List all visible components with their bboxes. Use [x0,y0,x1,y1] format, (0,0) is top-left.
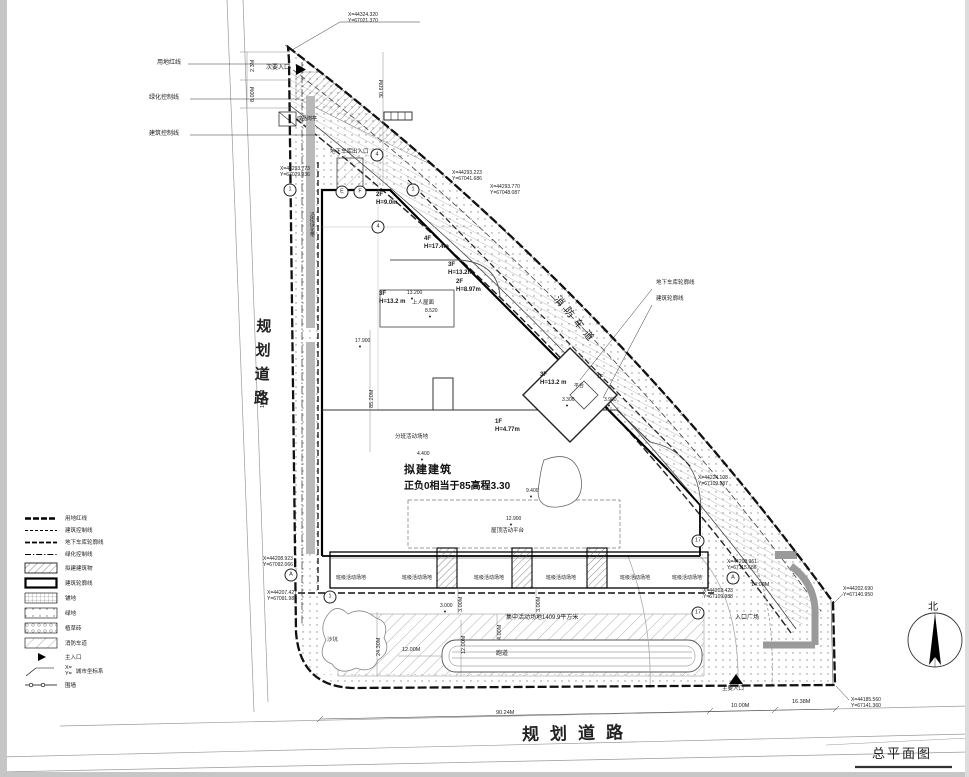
main-entrance-swatch [24,651,58,663]
coordinate-label: X=44207.427Y=67091.986 [267,590,297,602]
grid-bubble: 1 [324,591,337,604]
grid-bubble: A [285,569,298,582]
grass-brick-swatch [24,622,58,634]
dimension-label: 85.20M [369,390,375,408]
legend-label: 拟建建筑物 [65,564,93,572]
dimension-label: 3.00M [536,597,542,612]
legend-item-city-coords: X=Y= 城市坐标系 [24,664,164,678]
level-marker: 3.300▼ [562,398,575,407]
coordinate-label: X=44293.223Y=67041.686 [452,170,482,182]
floor-label: 3FH=13.2 m [540,372,567,387]
green-control-swatch [24,549,58,560]
coordinate-label: X=44293.770Y=67048.087 [490,184,520,196]
dimension-label: 8.00M [250,87,256,102]
grid-bubble: E [336,186,349,199]
garage-outline-swatch [24,537,58,548]
annotation-label: 建筑轮廓线 [656,296,684,302]
dimension-label: 90.24M [496,710,514,716]
coordinate-label: X=44208.961Y=67115.686 [727,559,757,571]
annotation-label: 用地红线 [157,60,181,67]
grid-bubble: 17 [692,535,705,548]
level-marker: 17.900▼ [355,339,370,348]
legend-item-building-control: 建筑控制线 [24,524,164,536]
legend-item-fire-lane: 消防车道 [24,635,164,650]
wall-swatch [24,679,58,691]
annotation-label: 地下车库出入口 [330,149,369,155]
legend-label: 绿地 [65,609,76,617]
dimension-label: 14.06M [751,582,769,588]
level-marker: 13.200▼ [407,291,422,300]
legend-label: 用地红线 [65,514,87,522]
north-label: 北 [928,598,938,613]
legend-item-wall: 围墙 [24,678,164,692]
floor-label: 1FH=4.77m [495,419,520,434]
city-coords-swatch [24,665,58,678]
legend-item-redline: 用地红线 [24,512,164,524]
level-marker: 12.900▼ [506,517,521,526]
coordinate-label: X=44208.923Y=67092.066 [263,556,293,568]
legend-label: 围墙 [65,681,76,689]
annotation-label: 消防车道 [551,294,599,348]
annotation-label: 主要入口 [722,686,744,692]
annotation-label: 次要入口 [266,65,290,72]
paving-swatch [24,592,58,604]
page-edge-bottom [0,772,969,777]
annotation-label: 沿街绿化带 [308,212,314,237]
annotation-label: 班级活动场地 [620,576,650,582]
legend-label: 铺地 [65,594,76,602]
dimension-label: 13.12M [260,390,266,408]
fire-lane-swatch [24,637,58,649]
dimension-label: 2.3M [250,60,256,72]
dimension-label: 3.00M [458,597,464,612]
grid-bubble: F [354,186,367,199]
level-marker: 9.400▼ [526,489,539,498]
legend-item-garage-outline: 地下车库轮廓线 [24,536,164,548]
legend-label: 主入口 [65,653,82,661]
dimension-label: 12.00M [461,636,467,654]
redline-swatch [24,513,58,524]
legend-label: 建筑控制线 [65,526,93,534]
grid-bubble: A [727,572,740,585]
legend-label: 植草砖 [65,624,82,632]
coordinate-label: X=44202.690Y=67140.950 [843,586,873,598]
coordinate-label: X=44293.773Y=67029.936 [280,166,310,178]
level-marker: 8.520▼ [425,309,438,318]
coordinate-label: X=44324.320Y=67021.370 [348,12,378,24]
grid-bubble: 1 [284,184,297,197]
site-plan-sheet: 规划道路 规划道路 总平面图 北 拟建建筑 正负0相当于85高程3.30 用地红… [0,0,969,777]
annotation-label: 地下车库轮廓线 [656,280,695,286]
page-edge-right [965,0,969,777]
annotation-label: 屋顶活动平台 [491,528,524,534]
annotation-label: 1F [597,374,603,380]
annotation-label: 集中活动场地1409.9平方米 [506,615,578,622]
annotation-label: 班级活动场地 [474,576,504,582]
legend-label: 地下车库轮廓线 [65,538,104,546]
dimension-label: 24.30M [376,638,382,656]
legend-item-green-control: 绿化控制线 [24,548,164,560]
annotation-label: 沙坑 [327,637,338,643]
annotation-label: 建筑控制线 [149,131,179,138]
dimension-label: 12.00M [402,647,420,653]
annotation-label: 跑道 [496,651,508,658]
level-marker: 3.900▼ [604,398,617,407]
annotation-label: 班级活动场地 [546,576,576,582]
legend-item-paving: 铺地 [24,590,164,605]
coordinate-label: X=44224.108Y=67109.987 [698,475,728,487]
level-marker: 3.000▼ [440,604,453,613]
grid-bubble: 17 [692,607,705,620]
floor-label: 3FH=13.2 m [379,291,406,306]
coordinate-label: X=44185.560Y=67141.360 [851,697,881,709]
dimension-label: 30.60M [379,80,385,98]
annotation-label: 成品岗亭 [297,117,317,123]
dimension-label: 4.00M [497,625,503,640]
grid-bubble: 1 [407,184,420,197]
dimension-label: 10.00M [731,703,749,709]
annotation-label: 入口广场 [735,615,759,622]
floor-label: 4FH=17.4m [424,236,449,251]
building-outline-swatch [24,577,58,589]
legend-item-main-entrance: 主入口 [24,650,164,664]
legend-item-greenery: 绿地 [24,605,164,620]
greenery-swatch [24,607,58,619]
page-edge-left [0,0,7,777]
legend-label: 建筑轮廓线 [65,579,93,587]
sheet-title: 总平面图 [872,743,932,762]
legend-coord-symbol: X=Y= [65,665,72,677]
floor-label: 2FH=9.0m [376,192,398,207]
legend-label: 消防车道 [65,639,87,647]
annotation-label: 绿化控制线 [149,95,179,102]
legend-item-building-outline: 建筑轮廓线 [24,575,164,590]
floor-label: 3FH=13.2m [448,262,473,277]
grid-bubble: 4 [372,221,385,234]
annotation-label: 平台 [574,384,584,390]
annotation-label: 分班活动场地 [395,434,428,440]
legend-item-proposed-building: 拟建建筑物 [24,560,164,575]
annotation-label: 班级活动场地 [672,576,702,582]
annotation-label: 班级活动场地 [336,576,366,582]
floor-label: 2FH=8.97m [456,279,481,294]
annotation-label: 上人屋面 [412,300,434,306]
legend-label: 城市坐标系 [76,667,104,675]
building-control-swatch [24,525,58,536]
grid-bubble: 4 [371,149,384,162]
legend-item-grass-brick: 植草砖 [24,620,164,635]
dimension-label: 16.38M [792,699,810,705]
level-marker: 4.400▼ [417,452,430,461]
proposed-building-swatch [24,562,58,574]
annotation-label: 班级活动场地 [402,576,432,582]
coordinate-label: X=44202.423Y=67109.988 [703,588,733,600]
legend-label: 绿化控制线 [65,550,93,558]
legend: 用地红线 建筑控制线 地下车库轮廓线 绿化控制线 拟建建筑物 建筑轮廓线 铺地 [24,512,164,692]
